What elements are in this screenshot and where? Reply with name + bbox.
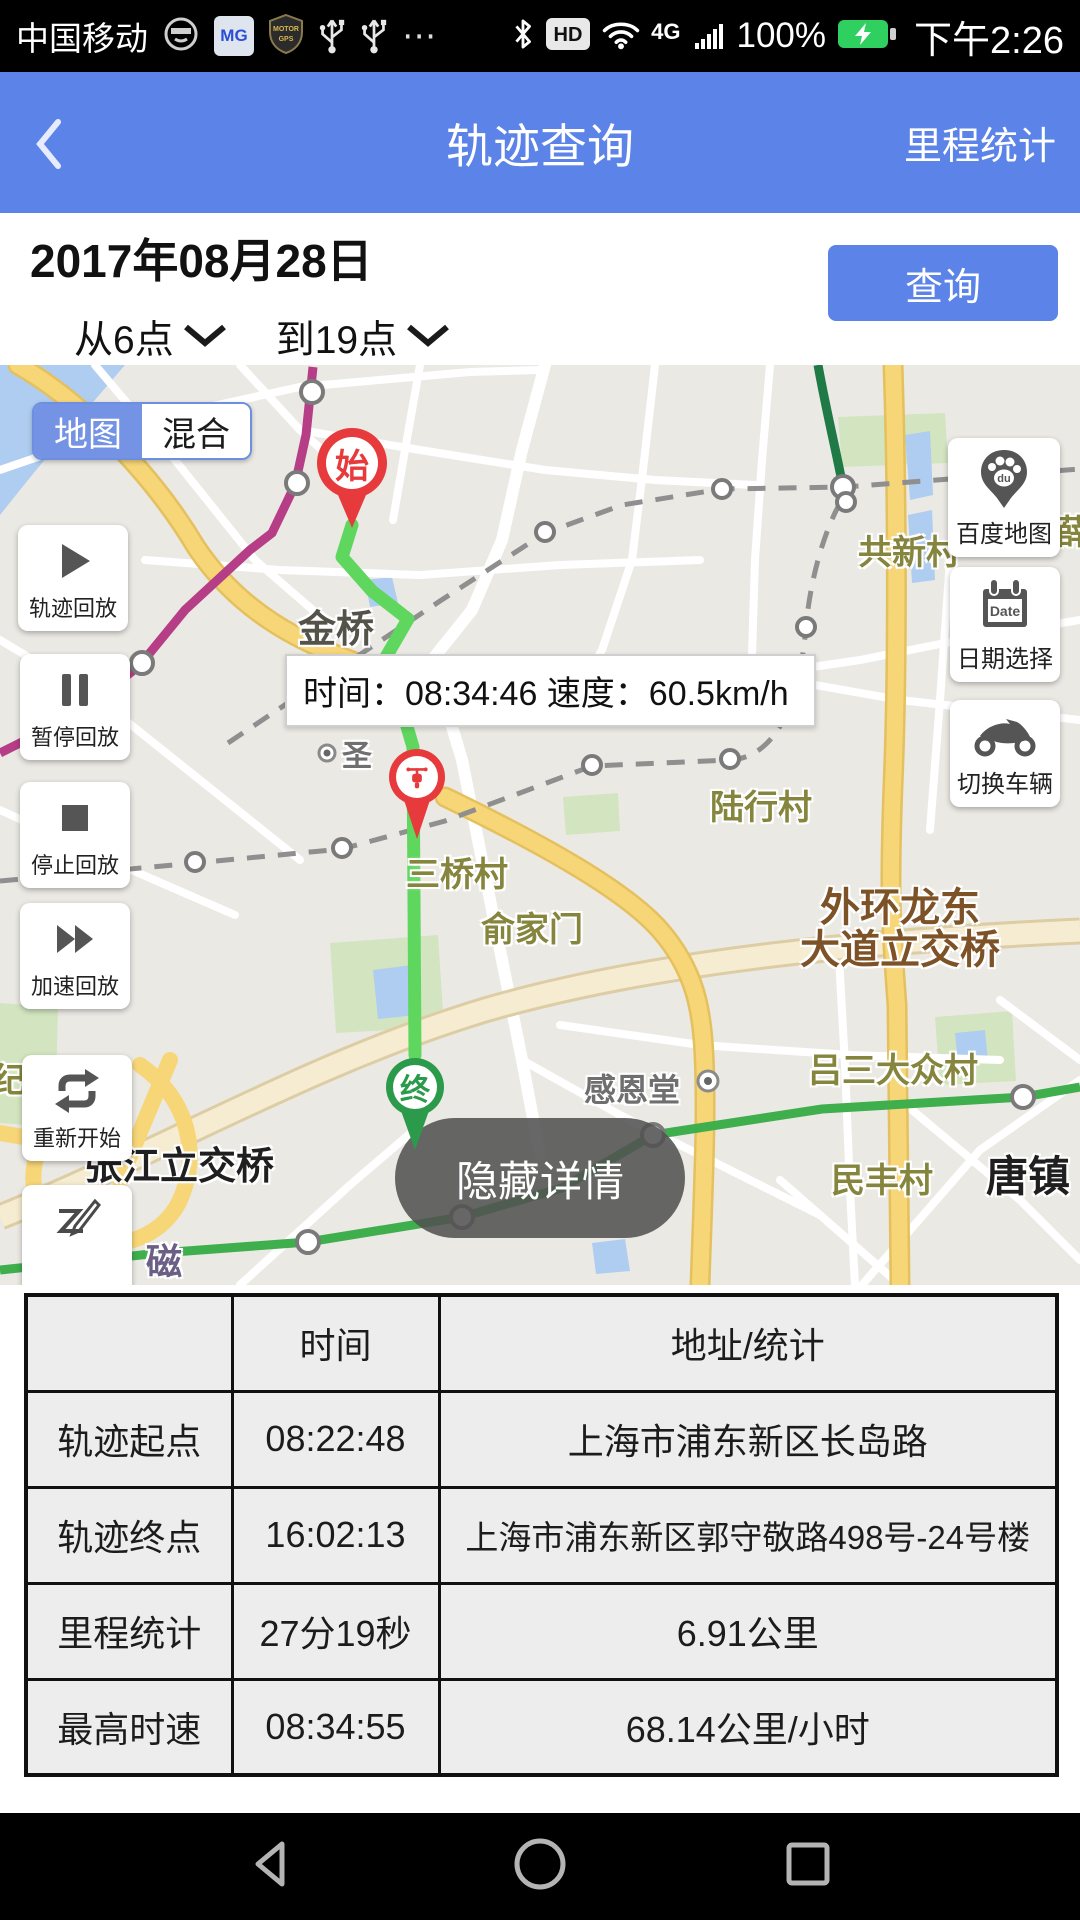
table-row-end: 轨迹终点 16:02:13 上海市浦东新区郭守敬路498号-24号楼 <box>26 1487 1057 1583</box>
track-stats-table: 时间 地址/统计 轨迹起点 08:22:48 上海市浦东新区长岛路 轨迹终点 1… <box>24 1293 1059 1777</box>
switch-vehicle-button[interactable]: 切换车辆 <box>950 700 1060 807</box>
track-info-text: 时间：08:34:46 速度：60.5km/h <box>303 666 789 715</box>
status-bar: 中国移动 MG MOTORGPS ⋯ HD <box>0 0 1080 72</box>
play-icon <box>47 535 99 587</box>
map-label-yujiamen: 俞家门 <box>481 902 583 951</box>
stop-playback-button[interactable]: 停止回放 <box>20 782 130 888</box>
end-marker[interactable]: 终 <box>386 1058 444 1116</box>
logo-icon <box>162 15 200 58</box>
phone-screen: 中国移动 MG MOTORGPS ⋯ HD <box>0 0 1080 1920</box>
query-panel: 2017年08月28日 从6点 到19点 查询 <box>0 213 1080 365</box>
nav-home-button[interactable] <box>512 1836 568 1897</box>
app-header: 轨迹查询 里程统计 <box>0 72 1080 213</box>
fast-forward-label: 加速回放 <box>31 969 119 1001</box>
map-canvas[interactable]: 金桥 共新村 薛 陆行村 三桥村 俞家门 外环龙东 大道立交桥 感恩堂 吕三大众… <box>0 365 1080 1285</box>
pause-playback-button[interactable]: 暂停回放 <box>20 654 130 760</box>
date-display[interactable]: 2017年08月28日 <box>30 225 373 291</box>
battery-icon <box>836 16 898 57</box>
svg-text:Date: Date <box>990 603 1021 619</box>
svg-text:GPS: GPS <box>279 36 294 43</box>
date-select-button[interactable]: Date 日期选择 <box>950 567 1060 682</box>
date-select-label: 日期选择 <box>957 639 1053 674</box>
header-cell-empty <box>26 1295 232 1391</box>
signal-bars-icon <box>693 17 727 56</box>
network-type-label: 4G <box>651 19 680 45</box>
more-notifications-icon: ⋯ <box>402 16 438 56</box>
play-track-label: 轨迹回放 <box>29 591 117 623</box>
layer-map-option[interactable]: 地图 <box>34 404 142 458</box>
switch-vehicle-label: 切换车辆 <box>957 764 1053 799</box>
mileage-stats-button[interactable]: 里程统计 <box>904 115 1056 170</box>
map-label-jinqiao: 金桥 <box>298 598 374 653</box>
usb-icon <box>318 13 346 60</box>
row-label: 最高时速 <box>26 1679 232 1775</box>
table-row-mileage: 里程统计 27分19秒 6.91公里 <box>26 1583 1057 1679</box>
map-label-lvsandazhongcun: 吕三大众村 <box>808 1043 978 1092</box>
wifi-icon <box>601 18 641 55</box>
restart-icon <box>51 1065 103 1117</box>
header-cell-address: 地址/统计 <box>439 1295 1057 1391</box>
row-label: 轨迹终点 <box>26 1487 232 1583</box>
row-time: 16:02:13 <box>232 1487 439 1583</box>
android-nav-bar <box>0 1813 1080 1920</box>
map-label-minfengcun: 民丰村 <box>831 1153 933 1202</box>
track-correction-button[interactable] <box>22 1185 132 1285</box>
baidu-pin-icon: du <box>977 448 1031 510</box>
to-hour-dropdown[interactable]: 到19点 <box>276 309 451 365</box>
row-value: 上海市浦东新区郭守敬路498号-24号楼 <box>439 1487 1057 1583</box>
pencil-draw-icon <box>51 1195 103 1247</box>
carrier-label: 中国移动 <box>16 12 148 60</box>
map-label-waihuan-interchange: 外环龙东 大道立交桥 <box>790 887 1010 971</box>
status-bar-left: 中国移动 MG MOTORGPS ⋯ <box>16 12 438 60</box>
svg-text:HD: HD <box>554 24 583 46</box>
header-cell-time: 时间 <box>232 1295 439 1391</box>
gps-shield-icon: MOTORGPS <box>268 13 304 60</box>
pause-icon <box>49 664 101 716</box>
nav-recents-button[interactable] <box>780 1836 836 1897</box>
stop-playback-label: 停止回放 <box>31 848 119 880</box>
row-value: 上海市浦东新区长岛路 <box>439 1391 1057 1487</box>
battery-percent-label: 100% <box>737 16 827 56</box>
row-label: 轨迹起点 <box>26 1391 232 1487</box>
row-time: 08:22:48 <box>232 1391 439 1487</box>
scooter-icon <box>404 764 430 790</box>
hour-range-row: 从6点 到19点 <box>74 309 451 365</box>
nav-back-button[interactable] <box>244 1836 300 1897</box>
map-label-ci-partial: 磁 <box>146 1233 182 1285</box>
bluetooth-icon <box>511 17 535 56</box>
restart-label: 重新开始 <box>33 1121 121 1153</box>
map-label-sanqiaocun: 三桥村 <box>406 847 508 896</box>
chevron-down-icon <box>405 315 451 359</box>
layer-hybrid-option[interactable]: 混合 <box>142 404 250 458</box>
status-bar-right: HD 4G 100% 下午2:26 <box>511 9 1064 64</box>
map-label-waihuan-line2: 大道立交桥 <box>790 929 1010 971</box>
table-row-start: 轨迹起点 08:22:48 上海市浦东新区长岛路 <box>26 1391 1057 1487</box>
vehicle-marker[interactable] <box>389 749 445 805</box>
calendar-icon: Date <box>977 577 1033 635</box>
row-time: 08:34:55 <box>232 1679 439 1775</box>
map-label-luxingcun: 陆行村 <box>710 780 812 829</box>
stop-icon <box>49 792 101 844</box>
motorcycle-icon <box>972 710 1038 760</box>
pause-playback-label: 暂停回放 <box>31 720 119 752</box>
restart-button[interactable]: 重新开始 <box>22 1055 132 1161</box>
map-label-sheng-partial: 圣 <box>342 731 372 775</box>
row-value: 68.14公里/小时 <box>439 1679 1057 1775</box>
search-button[interactable]: 查询 <box>828 245 1058 321</box>
row-value: 6.91公里 <box>439 1583 1057 1679</box>
clock-label: 下午2:26 <box>914 9 1064 64</box>
play-track-button[interactable]: 轨迹回放 <box>18 525 128 631</box>
from-hour-dropdown[interactable]: 从6点 <box>74 309 228 365</box>
usb-icon-2 <box>360 13 388 60</box>
map-label-waihuan-line1: 外环龙东 <box>790 887 1010 929</box>
map-layer-toggle: 地图 混合 <box>32 402 252 460</box>
baidu-map-label: 百度地图 <box>956 514 1052 549</box>
baidu-map-button[interactable]: du 百度地图 <box>948 438 1060 557</box>
back-button[interactable] <box>34 118 64 175</box>
hide-details-label: 隐藏详情 <box>456 1148 624 1209</box>
table-row-maxspeed: 最高时速 08:34:55 68.14公里/小时 <box>26 1679 1057 1775</box>
fast-forward-icon <box>49 913 101 965</box>
mg-app-icon: MG <box>214 16 254 56</box>
map-label-gongxincun: 共新村 <box>858 525 960 574</box>
mg-app-label: MG <box>220 26 247 46</box>
track-info-bubble: 时间：08:34:46 速度：60.5km/h <box>285 654 816 727</box>
hide-details-button[interactable]: 隐藏详情 <box>395 1118 685 1238</box>
row-label: 里程统计 <box>26 1583 232 1679</box>
from-hour-label: 从6点 <box>74 309 174 365</box>
map-label-ganentang: 感恩堂 <box>584 1065 680 1111</box>
start-marker[interactable]: 始 <box>317 428 387 498</box>
to-hour-label: 到19点 <box>276 309 397 365</box>
chevron-down-icon <box>182 315 228 359</box>
start-marker-glyph: 始 <box>335 439 369 488</box>
end-marker-glyph: 终 <box>400 1065 430 1109</box>
hd-icon: HD <box>545 17 591 56</box>
table-header-row: 时间 地址/统计 <box>26 1295 1057 1391</box>
row-time: 27分19秒 <box>232 1583 439 1679</box>
map-label-tangzhen: 唐镇 <box>986 1143 1070 1204</box>
fast-forward-button[interactable]: 加速回放 <box>20 903 130 1009</box>
svg-text:MOTOR: MOTOR <box>273 26 299 33</box>
svg-text:du: du <box>997 473 1010 485</box>
